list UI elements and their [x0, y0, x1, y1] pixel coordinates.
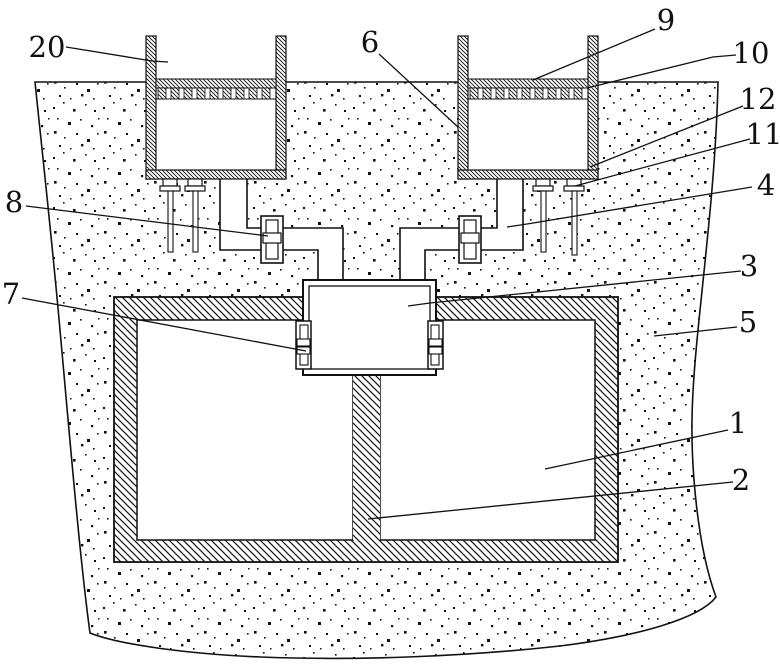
part-label-6: 6 [361, 25, 379, 59]
drain-pipe-left-1 [168, 191, 173, 252]
cross-section-drawing: 20 6 9 10 12 11 4 8 3 7 5 1 2 [0, 0, 780, 667]
collection-box-right-bottom [458, 170, 598, 179]
part-label-2: 2 [732, 463, 750, 497]
drain-pipe-left-2 [193, 191, 198, 252]
gate-valve-left [261, 216, 283, 263]
gate-valve-right [459, 216, 481, 263]
part-label-10: 10 [733, 36, 770, 70]
collection-box-left-wall-left [146, 36, 156, 179]
part-label-4: 4 [757, 168, 775, 202]
side-valve-left [296, 321, 311, 369]
part-label-8: 8 [5, 185, 23, 219]
distribution-box [296, 280, 443, 375]
part-label-12: 12 [740, 82, 777, 116]
part-label-1: 1 [729, 406, 747, 440]
part-label-5: 5 [739, 305, 757, 339]
drain-pipe-right-2 [572, 191, 577, 255]
part-label-3: 3 [740, 249, 758, 283]
collection-box-left-bottom [146, 170, 286, 179]
patent-figure: 20 6 9 10 12 11 4 8 3 7 5 1 2 [0, 0, 780, 667]
side-valve-right [428, 321, 443, 369]
part-label-7: 7 [2, 277, 20, 311]
part-label-9: 9 [657, 3, 675, 37]
part-label-11: 11 [746, 117, 780, 151]
collection-box-right-wall-left [458, 36, 468, 179]
distribution-box-outer [303, 280, 436, 375]
divider-wall [353, 375, 380, 540]
collection-box-left-wall-right [276, 36, 286, 179]
collection-box-right-wall-right [588, 36, 598, 179]
part-label-20: 20 [29, 30, 66, 64]
